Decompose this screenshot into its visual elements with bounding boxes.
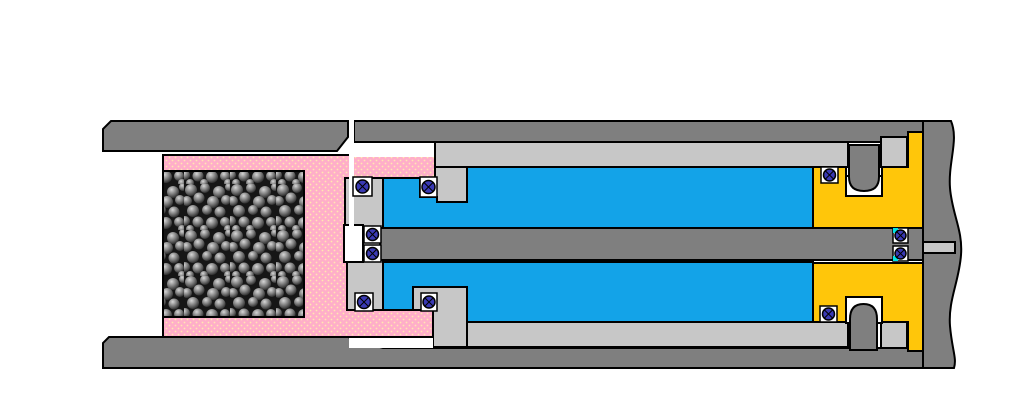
cylinder-wall-bottom (467, 322, 848, 347)
seal-rod-left-lower (364, 245, 381, 262)
seal-rod-left-upper (364, 226, 381, 243)
seal-piston-lower-left (355, 293, 373, 311)
seal-piston-upper-left (353, 177, 372, 196)
rod-extension (923, 242, 955, 253)
seal-rod-right-lower (893, 246, 908, 261)
outer-tube-top-left (103, 121, 348, 151)
seal-piston-lower-right (421, 293, 437, 311)
valve-plug-top (849, 145, 879, 191)
outer-tube-top-right (354, 121, 923, 142)
seal-gland-lower (820, 306, 837, 322)
retainer-block-bottom (881, 322, 907, 348)
cylinder-wall-top (435, 142, 848, 167)
seal-rod-right-upper (893, 228, 908, 243)
rod-end-spacer (344, 225, 363, 262)
diagram-canvas (0, 0, 1024, 414)
recoil-mechanism-diagram (0, 0, 1024, 414)
seal-gland-upper (821, 167, 838, 183)
valve-plug-bottom (850, 304, 877, 350)
section-cut-line (349, 120, 354, 226)
top-clearance-gap (351, 143, 435, 157)
piston-rod (380, 228, 923, 260)
seal-piston-upper-right (420, 177, 437, 197)
retainer-block-top (881, 137, 907, 167)
ball-chamber (163, 171, 304, 317)
bottom-clearance-gap (349, 338, 433, 348)
